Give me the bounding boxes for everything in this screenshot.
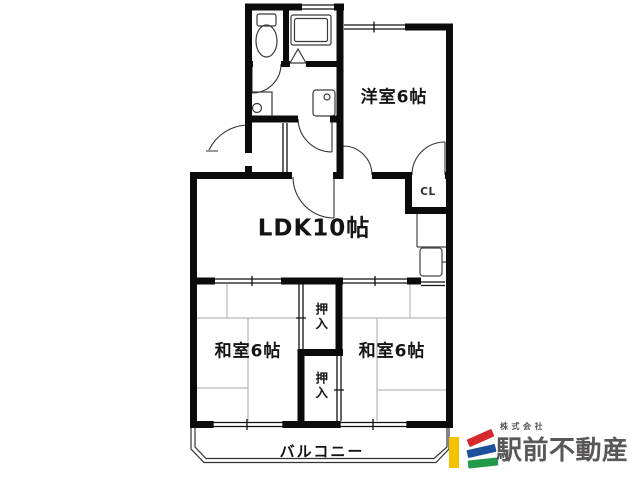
bath-window: [302, 5, 336, 9]
western-room-door-arc: [343, 146, 372, 175]
room-label-japanese-room-left: 和室6帖: [215, 344, 282, 361]
floorplan-page: 洋室6帖 LDK10帖 和室6帖 和室6帖 押入 押入 CL バルコニー 株式会…: [0, 0, 640, 480]
kitchen-counter: [417, 212, 449, 276]
room-label-ldk: LDK10帖: [258, 218, 371, 241]
room-label-western-room: 洋室6帖: [361, 90, 428, 107]
kitchen-nook-opening: [421, 282, 445, 286]
closet-label-upper: 押入: [314, 303, 327, 332]
bathtub-icon: [291, 15, 331, 45]
fusuma-ldk-left-room: [215, 276, 281, 286]
oshiire-upper-front: [296, 284, 306, 349]
room-label-japanese-room-right: 和室6帖: [359, 344, 426, 361]
ldk-door-arc: [293, 177, 334, 218]
closet-label-lower: 押入: [314, 372, 327, 401]
oshiire-lower-front: [334, 355, 344, 421]
washing-machine-pan-icon: [313, 90, 335, 116]
kitchen-sink-icon: [420, 248, 442, 276]
closet-label-cl: CL: [420, 187, 435, 198]
bath-folding-door-icon: [290, 49, 306, 63]
fusuma-ldk-right-room: [343, 276, 407, 286]
washroom-door-arc: [298, 119, 332, 152]
entrance-step-line: [283, 123, 287, 172]
balcony-label: バルコニー: [280, 445, 365, 460]
western-room-window: [344, 22, 405, 33]
cl-door-arc: [412, 142, 445, 175]
toilet-door-arc: [252, 64, 281, 93]
entrance-door-arc: [206, 125, 249, 151]
balcony-window-right: [340, 419, 407, 430]
toilet-icon: [256, 14, 277, 57]
